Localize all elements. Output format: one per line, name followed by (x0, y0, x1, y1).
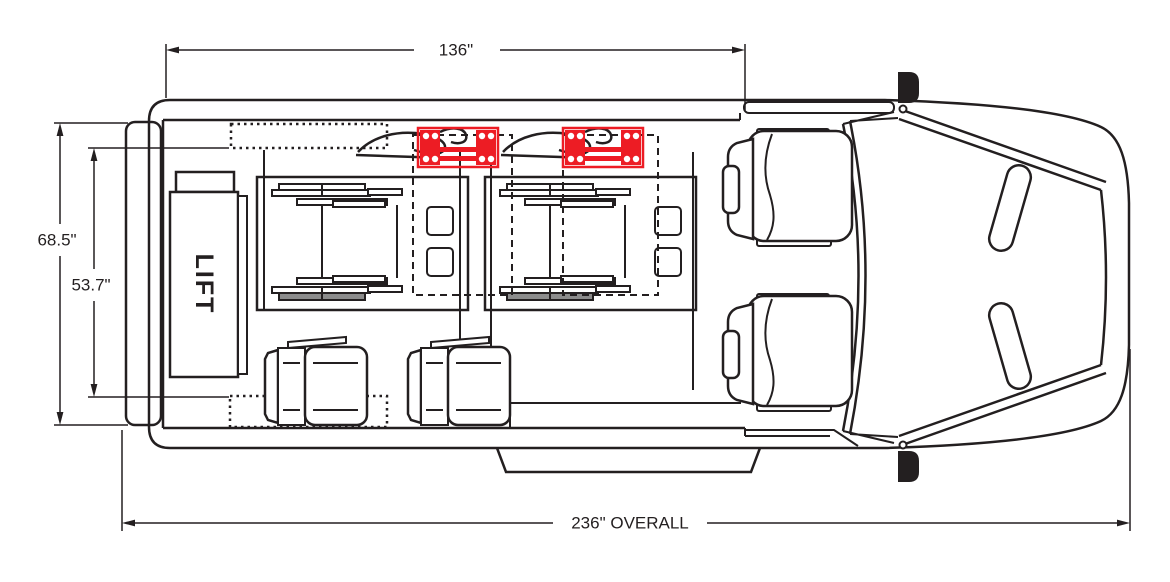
dim-236-label: 236" OVERALL (571, 514, 689, 533)
dim-53-label: 53.7" (71, 276, 110, 295)
lift-unit: LIFT (170, 172, 247, 377)
a-pillar-top (899, 111, 1106, 190)
wheelchair-1 (257, 177, 468, 310)
hood-front-edge (1101, 190, 1106, 365)
lift-label: LIFT (190, 254, 218, 315)
van-floor-plan-diagram: LIFT 136" 68.5" 53.7" (0, 0, 1170, 582)
a-pillar-bottom (899, 365, 1106, 444)
driver-seat (723, 129, 852, 246)
door-opening-top-dotted (231, 124, 387, 148)
rear-door (126, 122, 161, 425)
hood-vent-lower (986, 300, 1033, 391)
front-end (843, 111, 1106, 444)
passenger-seat (723, 294, 852, 411)
restraint-fitting-2 (501, 128, 643, 167)
wheelchair-2 (485, 177, 696, 310)
entry-step (497, 448, 760, 472)
sliding-door-track (510, 403, 741, 428)
driver-window (744, 102, 894, 113)
dimension-body-width: 68.5" (37, 123, 128, 425)
mirror-top (898, 72, 919, 113)
hood-vent-upper (986, 162, 1033, 253)
dim-136-label: 136" (439, 41, 473, 60)
rocker-panel (745, 428, 858, 446)
floor-plan-canvas: LIFT 136" 68.5" 53.7" (0, 0, 1170, 582)
jump-seat-1 (265, 337, 367, 425)
jump-seat-2 (408, 337, 510, 425)
dim-68-label: 68.5" (37, 231, 76, 250)
